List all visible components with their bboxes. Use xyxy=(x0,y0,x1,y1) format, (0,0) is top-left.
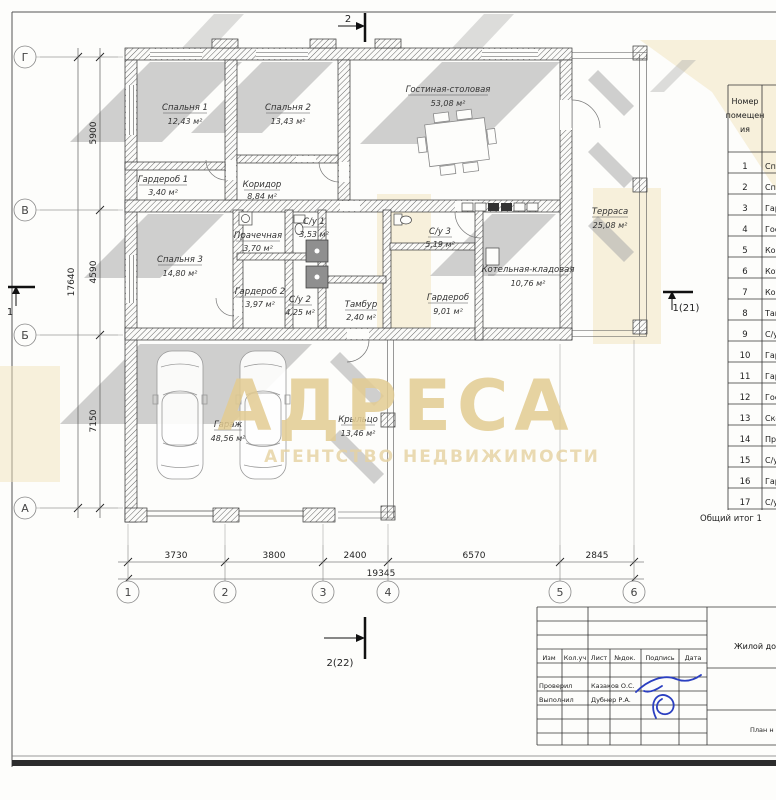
table-header: Номер xyxy=(732,97,759,106)
grid-bubble: В xyxy=(14,199,36,221)
svg-text:Терраса: Терраса xyxy=(592,207,628,217)
column-header: Дата xyxy=(685,654,702,662)
svg-text:Гос: Гос xyxy=(765,393,776,402)
svg-text:1: 1 xyxy=(742,162,747,172)
svg-text:12: 12 xyxy=(740,393,751,403)
svg-text:Гос: Гос xyxy=(765,225,776,234)
table-row: 15С/у xyxy=(740,456,776,466)
svg-text:Пра: Пра xyxy=(765,435,776,444)
dimension-label: 6570 xyxy=(463,551,486,561)
svg-text:Г: Г xyxy=(22,51,29,64)
svg-text:25,08 м²: 25,08 м² xyxy=(593,221,628,230)
watermark-title: АДРЕСА xyxy=(217,365,574,447)
svg-text:9: 9 xyxy=(742,330,747,340)
svg-text:Гардероб 1: Гардероб 1 xyxy=(138,175,188,185)
table-header: помещен xyxy=(726,111,765,120)
dimension-label: 4590 xyxy=(89,260,99,283)
svg-text:3,70 м²: 3,70 м² xyxy=(243,244,273,253)
table-row: 4Гос xyxy=(742,225,776,235)
svg-text:Спальня 2: Спальня 2 xyxy=(265,103,311,113)
svg-text:16: 16 xyxy=(740,477,751,487)
svg-text:С/у: С/у xyxy=(765,456,776,465)
svg-text:А: А xyxy=(21,502,29,515)
person-name: Дубнер Р.А. xyxy=(591,696,631,704)
svg-text:Котельная-кладовая: Котельная-кладовая xyxy=(482,265,575,275)
room-label: Коридор8,84 м² xyxy=(243,180,282,201)
table-row: 14Пра xyxy=(740,435,776,445)
table-row: 16Гар xyxy=(740,477,776,487)
column-header: Кол.уч xyxy=(564,654,587,662)
column-header: Изм xyxy=(542,654,555,662)
dimension-label: 7150 xyxy=(89,409,99,432)
svg-text:3,97 м²: 3,97 м² xyxy=(245,300,275,309)
svg-text:1(21): 1(21) xyxy=(673,303,700,314)
floor-plan-drawing: Спальня 112,43 м² Спальня 213,43 м² Гост… xyxy=(0,0,776,800)
svg-text:С/у 3: С/у 3 xyxy=(429,227,451,237)
svg-text:13: 13 xyxy=(740,414,751,424)
dimension-label: 17640 xyxy=(67,267,77,296)
column-header: Подпись xyxy=(645,654,674,662)
svg-text:Там: Там xyxy=(764,309,776,318)
grid-bubble: 3 xyxy=(312,581,334,603)
svg-text:Сп: Сп xyxy=(765,183,776,192)
role-label: Проверил xyxy=(539,682,572,690)
drawing-title: План н xyxy=(750,726,774,734)
svg-text:3,53 м²: 3,53 м² xyxy=(299,230,329,239)
room-label: Гардероб9,01 м² xyxy=(427,293,469,316)
car-icon xyxy=(153,351,207,479)
signature xyxy=(636,675,701,718)
dimension-label: 2400 xyxy=(344,551,367,561)
blueprint-sheet: Спальня 112,43 м² Спальня 213,43 м² Гост… xyxy=(0,0,776,800)
svg-text:14,80 м²: 14,80 м² xyxy=(163,269,198,278)
grid-bubble: А xyxy=(14,497,36,519)
svg-text:4: 4 xyxy=(742,225,747,235)
svg-text:4,25 м²: 4,25 м² xyxy=(285,308,315,317)
dimension-label: 5900 xyxy=(89,121,99,144)
svg-text:Прачечная: Прачечная xyxy=(234,231,282,241)
svg-text:2: 2 xyxy=(345,14,351,25)
svg-text:Б: Б xyxy=(21,329,29,342)
dimension-label: 2845 xyxy=(586,551,609,561)
table-row: 7Кор xyxy=(742,288,776,298)
svg-text:10,76 м²: 10,76 м² xyxy=(511,279,546,288)
svg-text:Кор: Кор xyxy=(765,288,776,297)
svg-text:Спальня 3: Спальня 3 xyxy=(157,255,203,265)
column-header: №док. xyxy=(613,654,635,662)
grid-bubble: 1 xyxy=(117,581,139,603)
table-header: ия xyxy=(740,125,750,134)
dimension-label: 3730 xyxy=(165,551,188,561)
svg-text:2(22): 2(22) xyxy=(327,658,354,669)
svg-text:15: 15 xyxy=(740,456,751,466)
svg-text:11: 11 xyxy=(740,372,751,382)
svg-text:14: 14 xyxy=(740,435,751,445)
svg-text:5: 5 xyxy=(557,586,564,599)
svg-text:3,40 м²: 3,40 м² xyxy=(148,188,178,197)
table-row: 8Там xyxy=(742,309,776,319)
svg-text:Кот: Кот xyxy=(765,267,776,276)
svg-text:Кор: Кор xyxy=(765,246,776,255)
svg-text:1: 1 xyxy=(125,586,132,599)
svg-text:2,40 м²: 2,40 м² xyxy=(346,313,376,322)
grid-bubble: 4 xyxy=(377,581,399,603)
svg-text:В: В xyxy=(21,204,29,217)
svg-text:4: 4 xyxy=(385,586,392,599)
svg-text:Тамбур: Тамбур xyxy=(345,300,377,310)
table-footer: Общий итог 1 xyxy=(700,514,762,524)
svg-text:9,01 м²: 9,01 м² xyxy=(433,307,463,316)
svg-text:6: 6 xyxy=(631,586,638,599)
table-row: 12Гос xyxy=(740,393,776,403)
svg-text:Гар: Гар xyxy=(765,372,776,381)
table-row: 5Кор xyxy=(742,246,776,256)
svg-text:Гостиная-столовая: Гостиная-столовая xyxy=(406,85,491,95)
section-marker: 2(22) xyxy=(324,617,365,669)
table-row: 2Сп xyxy=(742,183,776,193)
watermark-subtitle: АГЕНТСТВО НЕДВИЖИМОСТИ xyxy=(264,447,600,467)
room-label: Тамбур2,40 м² xyxy=(345,300,377,322)
person-name: Казаков О.С. xyxy=(591,682,635,690)
svg-text:7: 7 xyxy=(742,288,747,298)
svg-text:5: 5 xyxy=(742,246,747,256)
grid-bubble: 2 xyxy=(214,581,236,603)
svg-text:5,19 м²: 5,19 м² xyxy=(425,240,455,249)
svg-text:С/у: С/у xyxy=(765,498,776,507)
svg-text:17: 17 xyxy=(740,498,751,508)
grid-bubble: 6 xyxy=(623,581,645,603)
section-marker: 1(21) xyxy=(663,291,700,314)
svg-text:Спальня 1: Спальня 1 xyxy=(162,103,208,113)
role-label: Выполнил xyxy=(539,696,574,704)
title-block: Изм Кол.уч Лист №док. Подпись Дата Прове… xyxy=(537,607,776,745)
table-row: 3Гар xyxy=(742,204,776,214)
svg-text:Гардероб 2: Гардероб 2 xyxy=(235,287,285,297)
svg-text:Гар: Гар xyxy=(765,204,776,213)
svg-text:53,08 м²: 53,08 м² xyxy=(431,99,466,108)
table-row: 11Гар xyxy=(740,372,776,382)
svg-text:Гардероб: Гардероб xyxy=(427,293,469,303)
grid-bubble: Г xyxy=(14,46,36,68)
table-row: 9С/у xyxy=(742,330,776,340)
column-header: Лист xyxy=(591,654,608,662)
svg-text:С/у 2: С/у 2 xyxy=(289,295,311,305)
svg-text:3: 3 xyxy=(742,204,747,214)
section-marker: 1 xyxy=(7,286,35,318)
table-row: 13Ско xyxy=(740,414,776,424)
table-row: 10Гар xyxy=(740,351,776,361)
svg-text:С/у 1: С/у 1 xyxy=(303,217,325,227)
dimension-label: 3800 xyxy=(263,551,286,561)
grid-bubble: Б xyxy=(14,324,36,346)
svg-text:Коридор: Коридор xyxy=(243,180,282,190)
svg-text:3: 3 xyxy=(320,586,327,599)
dimension-label: 19345 xyxy=(367,569,396,579)
svg-text:8,84 м²: 8,84 м² xyxy=(247,192,277,201)
svg-text:2: 2 xyxy=(222,586,229,599)
section-marker: 2 xyxy=(338,13,365,42)
grid-bubble: 5 xyxy=(549,581,571,603)
svg-text:12,43 м²: 12,43 м² xyxy=(168,117,203,126)
watermark: АДРЕСА АГЕНТСТВО НЕДВИЖИМОСТИ xyxy=(217,365,599,467)
svg-text:2: 2 xyxy=(742,183,747,193)
svg-text:13,43 м²: 13,43 м² xyxy=(271,117,306,126)
table-row: 6Кот xyxy=(742,267,776,277)
svg-text:Гар: Гар xyxy=(765,477,776,486)
svg-text:8: 8 xyxy=(742,309,747,319)
svg-text:Гар: Гар xyxy=(765,351,776,360)
svg-text:Сп: Сп xyxy=(765,162,776,171)
svg-text:10: 10 xyxy=(740,351,751,361)
table-row: 17С/у xyxy=(740,498,776,508)
svg-text:1: 1 xyxy=(7,307,13,318)
room-label: Гардероб 13,40 м² xyxy=(138,175,188,197)
project-title: Жилой дом xyxy=(734,642,776,651)
svg-text:С/у: С/у xyxy=(765,330,776,339)
svg-text:Ско: Ско xyxy=(765,414,776,423)
svg-text:6: 6 xyxy=(742,267,747,277)
